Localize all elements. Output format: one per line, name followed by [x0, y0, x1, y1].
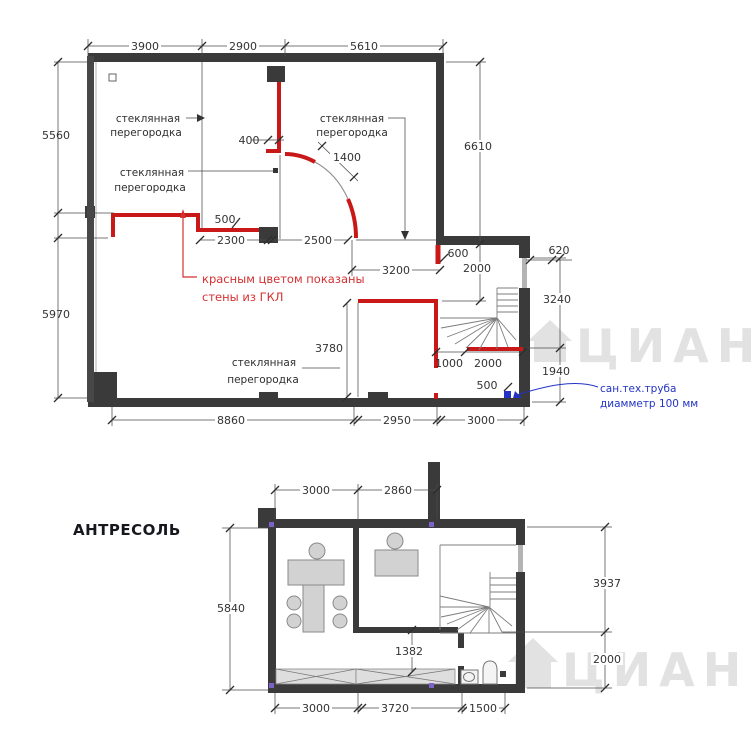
dim-3937: 3937: [593, 577, 621, 590]
dim-2500: 2500: [304, 234, 332, 247]
wall-small-pier: [500, 671, 506, 677]
floor-plan-drawing: ЦИАН ЦИАН: [0, 0, 756, 746]
dim-400: 400: [239, 134, 260, 147]
dim-2000-right: 2000: [463, 262, 491, 275]
dim-1400: 1400: [333, 151, 361, 164]
dim-3000-top: 3000: [302, 484, 330, 497]
wall-top: [258, 519, 525, 528]
chair: [287, 596, 301, 610]
wall-interior-horizontal: [358, 627, 458, 633]
floor2-bathroom: [461, 661, 497, 684]
sink-basin: [464, 673, 475, 682]
dim-8860: 8860: [217, 414, 245, 427]
dim-5560: 5560: [42, 129, 70, 142]
marker: [269, 683, 274, 688]
wall-right-upper: [436, 53, 444, 245]
floor2-furniture: [287, 533, 418, 632]
glass-label-2-line2: перегородка: [114, 182, 186, 194]
glass-label-2-line1: стеклянная: [120, 167, 184, 179]
pipe-note: сан.тех.труба диамметр 100 мм: [504, 383, 698, 410]
marker: [429, 522, 434, 527]
wall-top-step: [258, 508, 276, 519]
red-wall-room: [358, 301, 436, 368]
wall-upper-vertical: [428, 462, 440, 519]
glass-label-1-line2: перегородка: [110, 127, 182, 139]
dim-3200: 3200: [382, 264, 410, 277]
dim-2300: 2300: [217, 234, 245, 247]
dim-1940: 1940: [542, 365, 570, 378]
wall-corner-block: [93, 372, 117, 400]
dim-3240: 3240: [543, 293, 571, 306]
red-note-line1: красным цветом показаны: [202, 272, 365, 286]
floor2-railing-hatch: [276, 669, 455, 684]
door-swing-arc: [315, 162, 348, 199]
dim-2000-mezz: 2000: [593, 653, 621, 666]
dim-1382: 1382: [395, 645, 423, 658]
window-right: [518, 545, 523, 572]
dim-1000-stairs: 1000: [435, 357, 463, 370]
dim-3000-bottom: 3000: [302, 702, 330, 715]
arrow-right-icon: [197, 114, 205, 122]
watermark-text: ЦИАН: [562, 643, 749, 697]
chair: [287, 614, 301, 628]
pipe-note-line2: диамметр 100 мм: [600, 398, 698, 410]
chair: [333, 596, 347, 610]
wall-top: [88, 53, 444, 62]
wall-right-lower: [519, 288, 530, 400]
arrow-down-icon: [401, 231, 409, 240]
wall-bottom: [268, 684, 525, 693]
desk: [375, 550, 418, 576]
dim-3900: 3900: [131, 40, 159, 53]
wall-left: [87, 56, 94, 402]
dim-5970: 5970: [42, 308, 70, 321]
floor1-glass-labels: стеклянная перегородка стеклянная перего…: [110, 113, 409, 386]
dim-500-pipe: 500: [477, 379, 498, 392]
dim-5610: 5610: [350, 40, 378, 53]
dim-500-step: 500: [215, 213, 236, 226]
house-icon: [508, 638, 558, 688]
dim-3780: 3780: [315, 342, 343, 355]
chair: [309, 543, 325, 559]
toilet: [483, 661, 497, 684]
glass-label-4-line2: перегородка: [227, 374, 299, 386]
floor2-stairs: [440, 545, 516, 633]
red-arc-upper: [285, 154, 315, 162]
floor1-stairs: [440, 288, 518, 350]
desk-stem: [303, 585, 324, 632]
wall-right-lower: [516, 572, 525, 693]
floor-plan-page: ЦИАН ЦИАН: [0, 0, 756, 746]
dim-5840: 5840: [217, 602, 245, 615]
wall-interior-vertical: [353, 528, 359, 633]
wall-left: [268, 528, 276, 693]
wall-right-top: [516, 528, 525, 545]
floor1-dimension-labels: 3900 2900 5610 5560 5970 6610 620 3240 1…: [42, 40, 573, 427]
dim-2950: 2950: [383, 414, 411, 427]
wall-step-nub: [519, 245, 530, 258]
dim-3000: 3000: [467, 414, 495, 427]
desk-top: [288, 560, 344, 585]
glass-label-3-line1: стеклянная: [320, 113, 384, 125]
red-walls-note: красным цветом показаны стены из ГКЛ: [180, 209, 365, 304]
wall-notch: [259, 392, 278, 398]
dim-600: 600: [448, 247, 469, 260]
window-right: [522, 258, 527, 288]
marker: [269, 522, 274, 527]
wall-notch: [368, 392, 388, 398]
pipe-note-line1: сан.тех.труба: [600, 383, 676, 395]
wall-bath-upper: [458, 633, 464, 648]
chair: [333, 614, 347, 628]
dim-2860: 2860: [384, 484, 412, 497]
house-icon: [528, 320, 572, 362]
dim-6610: 6610: [464, 140, 492, 153]
red-arc-lower: [348, 199, 356, 238]
glass-label-3-line2: перегородка: [316, 127, 388, 139]
dim-1500: 1500: [469, 702, 497, 715]
red-note-line2: стены из ГКЛ: [202, 290, 283, 304]
column-mid: [259, 227, 278, 243]
pipe-marker: [504, 391, 511, 398]
dim-2000-stairs: 2000: [474, 357, 502, 370]
chair: [387, 533, 403, 549]
column-top: [267, 66, 285, 82]
dim-620: 620: [549, 244, 570, 257]
wall-bottom: [88, 398, 530, 407]
dim-2900: 2900: [229, 40, 257, 53]
outlet-symbol: [109, 74, 116, 81]
floor2-title: АНТРЕСОЛЬ: [73, 521, 181, 539]
leader-end-square: [273, 168, 278, 173]
marker: [429, 683, 434, 688]
glass-label-4-line1: стеклянная: [232, 357, 296, 369]
glass-label-1-line1: стеклянная: [116, 113, 180, 125]
dim-3720: 3720: [381, 702, 409, 715]
watermark-text: ЦИАН: [576, 319, 756, 373]
